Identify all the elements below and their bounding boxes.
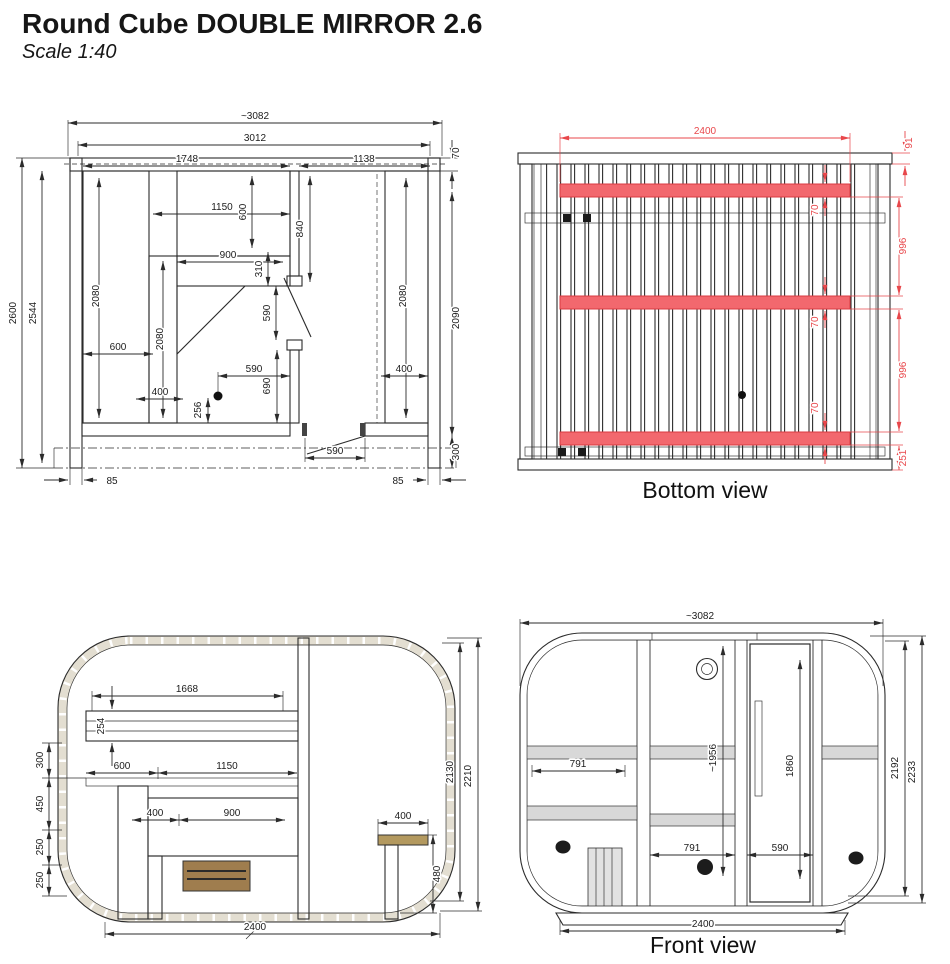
dim-label: 310 (254, 260, 265, 277)
shell-inner-line (67, 645, 446, 913)
front-view-label: Front view (650, 932, 756, 958)
drain-cap (697, 859, 713, 875)
side-interior (86, 711, 428, 919)
bottom-structure (518, 153, 892, 470)
dim-label: 91 (904, 137, 915, 149)
right-rail-outer (878, 164, 890, 459)
roof-vent-inner (702, 664, 713, 675)
roof-vent (697, 659, 718, 680)
dim-label: 590 (246, 364, 263, 375)
left-rail-inner (534, 164, 541, 459)
drawing-scale: Scale 1:40 (22, 41, 950, 64)
dim-label: 2130 (445, 760, 456, 783)
dim-label: 70 (810, 316, 821, 328)
dim-label: 791 (570, 759, 587, 770)
door-glass (747, 640, 813, 906)
fixing-clip (583, 214, 591, 222)
dim-label: 1748 (176, 154, 199, 165)
dim-label: 1150 (216, 761, 238, 772)
shell-segments (63, 641, 451, 918)
dim-label: 400 (147, 808, 164, 819)
room-bench-leg (385, 845, 398, 919)
dim-label: 600 (110, 342, 127, 353)
window-right (822, 640, 878, 906)
corner-bench (177, 286, 245, 354)
dim-label: 70 (810, 402, 821, 414)
dim-label: 256 (193, 401, 204, 418)
foundation-beam-3 (560, 432, 850, 445)
dim-label: 2544 (28, 301, 39, 324)
dim-label: 900 (224, 808, 241, 819)
dim-label: 480 (432, 865, 443, 882)
room-bench-top (378, 835, 428, 845)
bench-top (177, 171, 290, 256)
vent-fan-left (556, 841, 571, 854)
back-column (118, 786, 148, 919)
dim-label: 254 (96, 717, 107, 734)
door-leaf (750, 644, 810, 902)
dim-label: 1668 (176, 684, 199, 695)
fixing-clip (558, 448, 566, 456)
side-section-drawing: 1668 254 600 1150 300 450 250 250 400 90… (0, 586, 505, 964)
dim-label: 600 (238, 203, 249, 220)
dim-label: 2080 (398, 284, 409, 307)
dim-label: 400 (396, 364, 413, 375)
top-view-drawing: ~3082 3012 1748 1138 70 2600 2544 2090 3… (0, 96, 480, 526)
dim-label: 996 (898, 361, 909, 378)
bench-silhouette (650, 814, 735, 826)
dim-label: 590 (772, 843, 789, 854)
dim-label: 250 (35, 871, 46, 888)
side-dimensions: 1668 254 600 1150 300 450 250 250 400 90… (35, 638, 482, 939)
drawing-sheet: Round Cube DOUBLE MIRROR 2.6 Scale 1:40 (0, 8, 950, 964)
dim-label: 590 (262, 304, 273, 321)
front-door-post-left (302, 423, 307, 436)
dim-label: 2080 (155, 327, 166, 350)
heater-grille (588, 848, 622, 906)
door-handle (755, 701, 762, 796)
dim-label: 2090 (451, 306, 462, 329)
dim-label: 2210 (463, 764, 474, 787)
dim-label: 840 (295, 220, 306, 237)
dim-label: 251 (898, 449, 909, 466)
window-center (650, 640, 735, 906)
dim-label: 300 (35, 751, 46, 768)
bottom-cap (518, 459, 892, 470)
dim-label: 400 (395, 811, 412, 822)
dim-label: 1860 (785, 754, 796, 777)
dim-label: 2233 (907, 760, 918, 783)
dim-label: 2600 (8, 301, 19, 324)
front-post (148, 856, 162, 919)
dim-label: 250 (35, 838, 46, 855)
bench-silhouette (650, 746, 735, 759)
heater-dot (214, 392, 223, 401)
wall-bottom-right (365, 423, 428, 436)
dim-label: 2400 (694, 126, 717, 137)
dim-label: 690 (262, 377, 273, 394)
mullion-1 (637, 640, 650, 906)
door-frame-left (735, 640, 747, 906)
dim-label: 900 (220, 250, 237, 261)
door-post-top (287, 276, 302, 286)
dim-label: 1150 (211, 202, 233, 213)
drawing-title: Round Cube DOUBLE MIRROR 2.6 (22, 8, 950, 40)
plan-dimensions: ~3082 3012 1748 1138 70 2600 2544 2090 3… (8, 111, 466, 487)
foundation-beam-1 (560, 184, 850, 197)
dim-label: 85 (392, 476, 404, 487)
dim-label: 2192 (890, 756, 901, 779)
wall-left (70, 158, 82, 468)
dim-label: 996 (898, 237, 909, 254)
dim-label: ~3082 (686, 611, 715, 622)
dim-label: 450 (35, 795, 46, 812)
dim-label: 85 (106, 476, 118, 487)
front-body (520, 633, 885, 925)
bench-silhouette (822, 746, 878, 759)
dim-label: 70 (810, 204, 821, 216)
wall-bottom-left (82, 423, 290, 436)
bottom-view-label: Bottom view (642, 477, 768, 503)
bottom-view-drawing: 2400 91 70 70 70 996 996 251 Bottom view (500, 103, 950, 523)
dim-label: 1138 (353, 154, 375, 165)
foundation-beam-2 (560, 296, 850, 309)
dim-label: 3012 (244, 133, 267, 144)
bench-right-back (377, 171, 385, 423)
right-rail-inner (870, 164, 876, 459)
upper-bench (86, 711, 298, 741)
front-view-drawing: ~3082 791 ~1956 1860 791 590 2192 2233 2… (500, 586, 950, 964)
inner-door-leaf (284, 278, 311, 337)
wall-top (70, 158, 440, 171)
vent-fan-right (849, 852, 864, 865)
wall-right (428, 158, 440, 468)
bench-silhouette (527, 806, 637, 820)
partition-lower (290, 350, 299, 423)
plan-walls (54, 158, 456, 468)
front-door-post-right (360, 423, 365, 436)
top-cap (518, 153, 892, 164)
dim-label: 400 (152, 387, 169, 398)
mid-board (86, 778, 298, 786)
fixing-clip (578, 448, 586, 456)
plan-benches (83, 171, 428, 454)
dim-label: ~1956 (708, 744, 719, 773)
dim-label: ~3082 (241, 111, 270, 122)
dim-label: 2080 (91, 284, 102, 307)
dim-label: 590 (327, 446, 344, 457)
dim-label: 2400 (244, 922, 267, 933)
partition-wall (298, 638, 309, 919)
bench-platform (148, 798, 298, 856)
mullion-2 (813, 640, 822, 906)
front-interior (527, 640, 878, 906)
bench-silhouette (527, 746, 637, 759)
dim-label: 791 (684, 843, 701, 854)
fixing-clip (563, 214, 571, 222)
dim-label: 300 (451, 443, 462, 460)
dim-label: 600 (114, 761, 131, 772)
heater-box (183, 861, 250, 891)
door-post-bottom (287, 340, 302, 350)
dim-label: 2400 (692, 919, 715, 930)
dim-label: 70 (451, 147, 462, 159)
drain-dot (738, 391, 746, 399)
left-rail-outer (520, 164, 532, 459)
